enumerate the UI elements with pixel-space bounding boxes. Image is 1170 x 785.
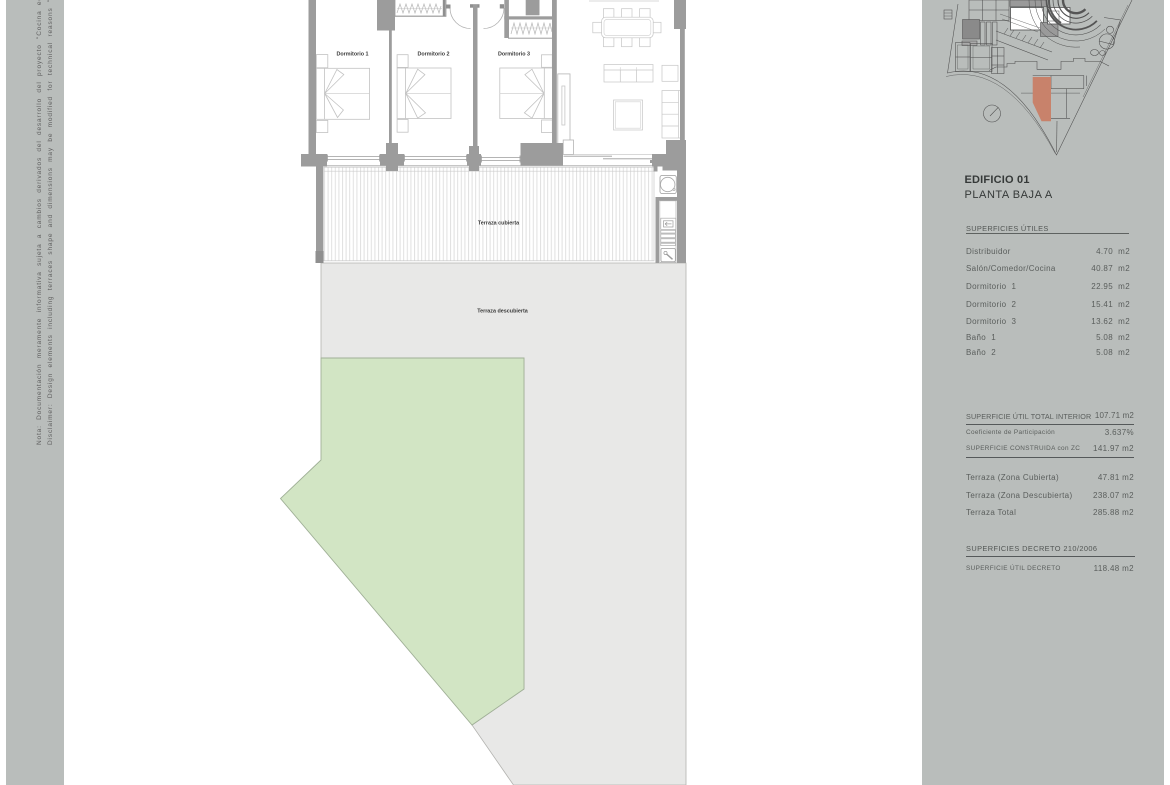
svg-text:Terraza descubierta: Terraza descubierta bbox=[477, 309, 529, 315]
svg-text:Dormitorio 2: Dormitorio 2 bbox=[417, 52, 449, 58]
svg-text:Dormitorio 1: Dormitorio 1 bbox=[336, 52, 368, 58]
svg-text:Terraza cubierta: Terraza cubierta bbox=[478, 220, 520, 226]
svg-text:Dormitorio 3: Dormitorio 3 bbox=[498, 52, 530, 58]
